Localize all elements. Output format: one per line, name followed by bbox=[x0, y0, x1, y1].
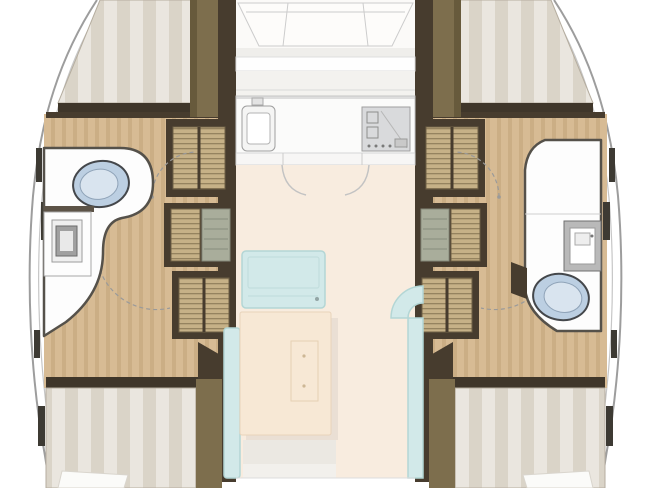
galley-sink-basin bbox=[247, 113, 270, 144]
coachroof-band bbox=[236, 71, 415, 96]
windshield-band bbox=[236, 48, 415, 57]
floor-plan-drawing bbox=[0, 0, 651, 488]
starboard-bench bbox=[408, 318, 423, 478]
stove-panel bbox=[395, 139, 407, 147]
vanity-ledge bbox=[44, 206, 94, 212]
stove-knob bbox=[382, 145, 385, 148]
port-bench bbox=[224, 328, 240, 478]
aft-step bbox=[243, 440, 336, 464]
head-wall-wedge bbox=[511, 262, 527, 299]
table-fitting bbox=[302, 384, 305, 387]
wardrobe bbox=[166, 119, 232, 197]
berth-side-panel-shade bbox=[190, 0, 197, 117]
floor-plan bbox=[0, 0, 651, 488]
stove-knob bbox=[389, 145, 392, 148]
dinette bbox=[240, 312, 338, 440]
sofa-base bbox=[242, 251, 325, 308]
windshield bbox=[236, 57, 415, 71]
galley-cabinets bbox=[236, 153, 415, 165]
stairs-locker-door bbox=[171, 209, 200, 261]
sink-basin bbox=[575, 233, 590, 245]
forward-berth-mattress bbox=[58, 0, 196, 103]
foredeck-panels bbox=[238, 3, 413, 46]
galley-faucet bbox=[252, 98, 263, 105]
port-sofa bbox=[242, 251, 325, 308]
sink-faucet bbox=[591, 235, 594, 238]
table-fitting bbox=[302, 354, 305, 357]
sofa-detail-dot bbox=[315, 297, 319, 301]
dinette-table bbox=[240, 312, 331, 435]
galley bbox=[236, 96, 415, 165]
sink-basin-inner bbox=[60, 231, 73, 251]
stove-knob bbox=[368, 145, 371, 148]
companionway-stairs bbox=[164, 203, 236, 267]
hull-window bbox=[38, 406, 45, 446]
galley-stove bbox=[362, 107, 410, 151]
aft-step-lower bbox=[243, 464, 336, 478]
hull-window bbox=[36, 148, 42, 182]
hull-window bbox=[34, 330, 40, 358]
saloon bbox=[224, 0, 423, 478]
stairs-treads bbox=[202, 209, 230, 261]
aft-berth-side-panel bbox=[196, 379, 222, 488]
aft-berth-headboard bbox=[46, 377, 198, 388]
stove-knob bbox=[375, 145, 378, 148]
